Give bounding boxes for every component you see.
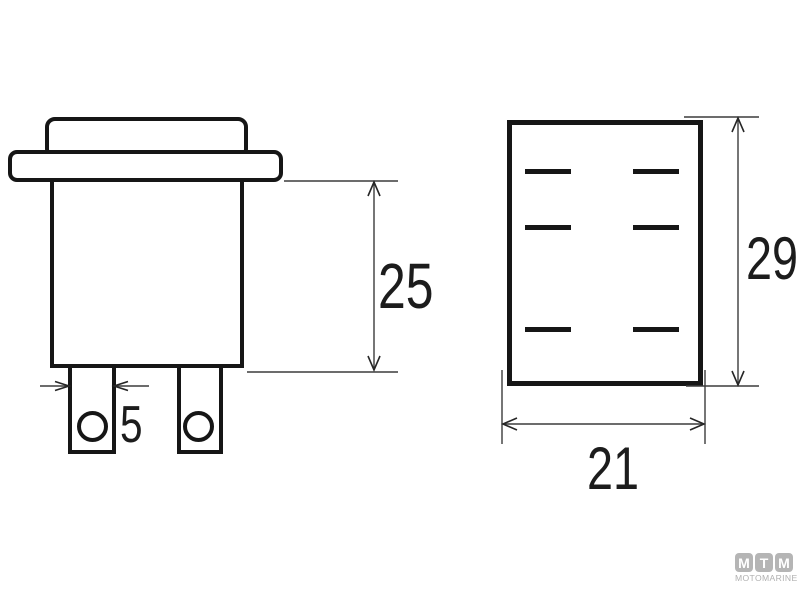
logo-tile-t: T: [755, 553, 773, 572]
terminal-slot: [633, 327, 679, 332]
terminal-slot: [525, 327, 571, 332]
technical-drawing-canvas: 25 5 29 21 M T M MOTOMARINE: [0, 0, 800, 600]
logo-tiles: M T M: [735, 553, 798, 572]
dimension-label-rear-width: 21: [587, 439, 639, 499]
terminal-slot: [633, 169, 679, 174]
mtm-logo: M T M MOTOMARINE: [735, 553, 798, 583]
terminal-slot: [633, 225, 679, 230]
side-view-flange: [8, 150, 283, 182]
dimension-label-rear-height: 29: [746, 229, 798, 289]
terminal-slot: [525, 169, 571, 174]
side-view-body: [50, 178, 244, 368]
terminal-slot: [525, 225, 571, 230]
logo-subtitle: MOTOMARINE: [735, 573, 798, 583]
logo-tile-m1: M: [735, 553, 753, 572]
rear-view-outline: [507, 120, 703, 386]
dimension-label-terminal-width: 5: [120, 399, 143, 451]
terminal-hole-left-icon: [77, 411, 108, 442]
logo-tile-m2: M: [775, 553, 793, 572]
terminal-hole-right-icon: [183, 411, 214, 442]
dimension-label-side-height: 25: [378, 254, 434, 318]
